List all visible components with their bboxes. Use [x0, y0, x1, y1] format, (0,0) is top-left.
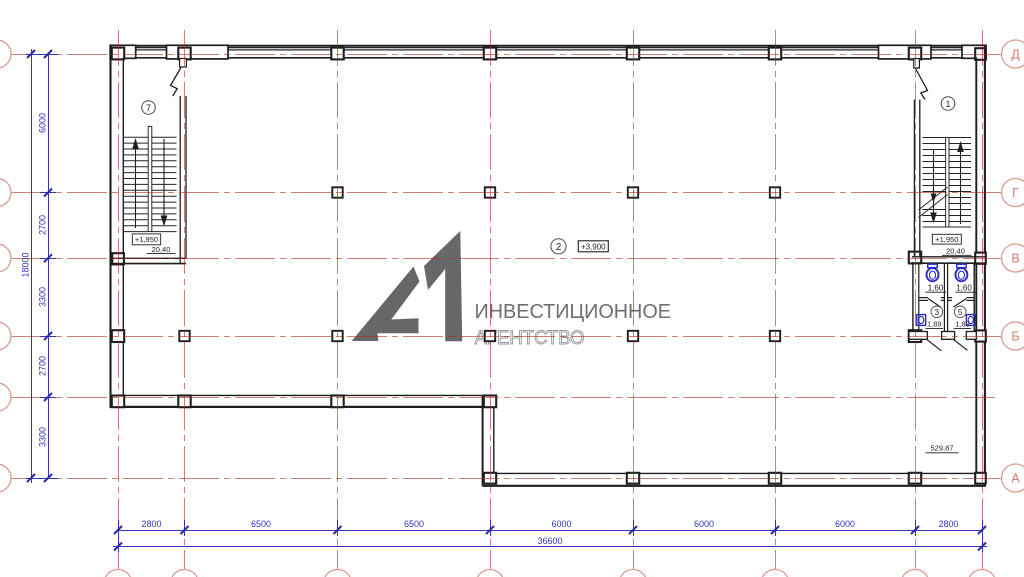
svg-text:2700: 2700: [38, 356, 48, 376]
svg-text:+3,900: +3,900: [581, 242, 606, 251]
svg-text:6000: 6000: [38, 113, 48, 133]
svg-text:18000: 18000: [21, 252, 31, 277]
svg-text:3300: 3300: [38, 287, 48, 307]
svg-text:36600: 36600: [537, 536, 562, 546]
svg-text:6500: 6500: [404, 519, 424, 529]
svg-text:2700: 2700: [38, 215, 48, 235]
svg-text:Д: Д: [1011, 48, 1020, 62]
svg-text:1,89: 1,89: [955, 320, 970, 329]
svg-text:20,40: 20,40: [946, 247, 965, 256]
svg-text:2800: 2800: [938, 519, 958, 529]
svg-text:7: 7: [146, 103, 151, 114]
svg-text:+1,950: +1,950: [935, 235, 958, 244]
svg-text:6500: 6500: [251, 519, 271, 529]
svg-text:3300: 3300: [38, 427, 48, 447]
svg-text:20,40: 20,40: [152, 245, 171, 254]
svg-text:529,87: 529,87: [931, 444, 954, 453]
svg-text:6000: 6000: [551, 519, 571, 529]
svg-text:А: А: [1011, 472, 1020, 486]
svg-text:1: 1: [945, 99, 950, 110]
svg-text:Г: Г: [1012, 186, 1019, 200]
svg-text:6000: 6000: [835, 519, 855, 529]
svg-text:Б: Б: [1011, 330, 1019, 344]
svg-text:1,60: 1,60: [956, 284, 972, 293]
svg-text:5: 5: [958, 307, 963, 317]
svg-text:6000: 6000: [694, 519, 714, 529]
svg-text:В: В: [1011, 252, 1019, 266]
svg-text:2: 2: [556, 242, 562, 253]
svg-text:2800: 2800: [141, 519, 161, 529]
svg-text:1,89: 1,89: [927, 320, 942, 329]
svg-text:ИНВЕСТИЦИОННОЕ: ИНВЕСТИЦИОННОЕ: [475, 301, 672, 323]
svg-text:1,60: 1,60: [928, 284, 944, 293]
svg-text:3: 3: [934, 307, 939, 317]
svg-text:+1,950: +1,950: [135, 235, 158, 244]
